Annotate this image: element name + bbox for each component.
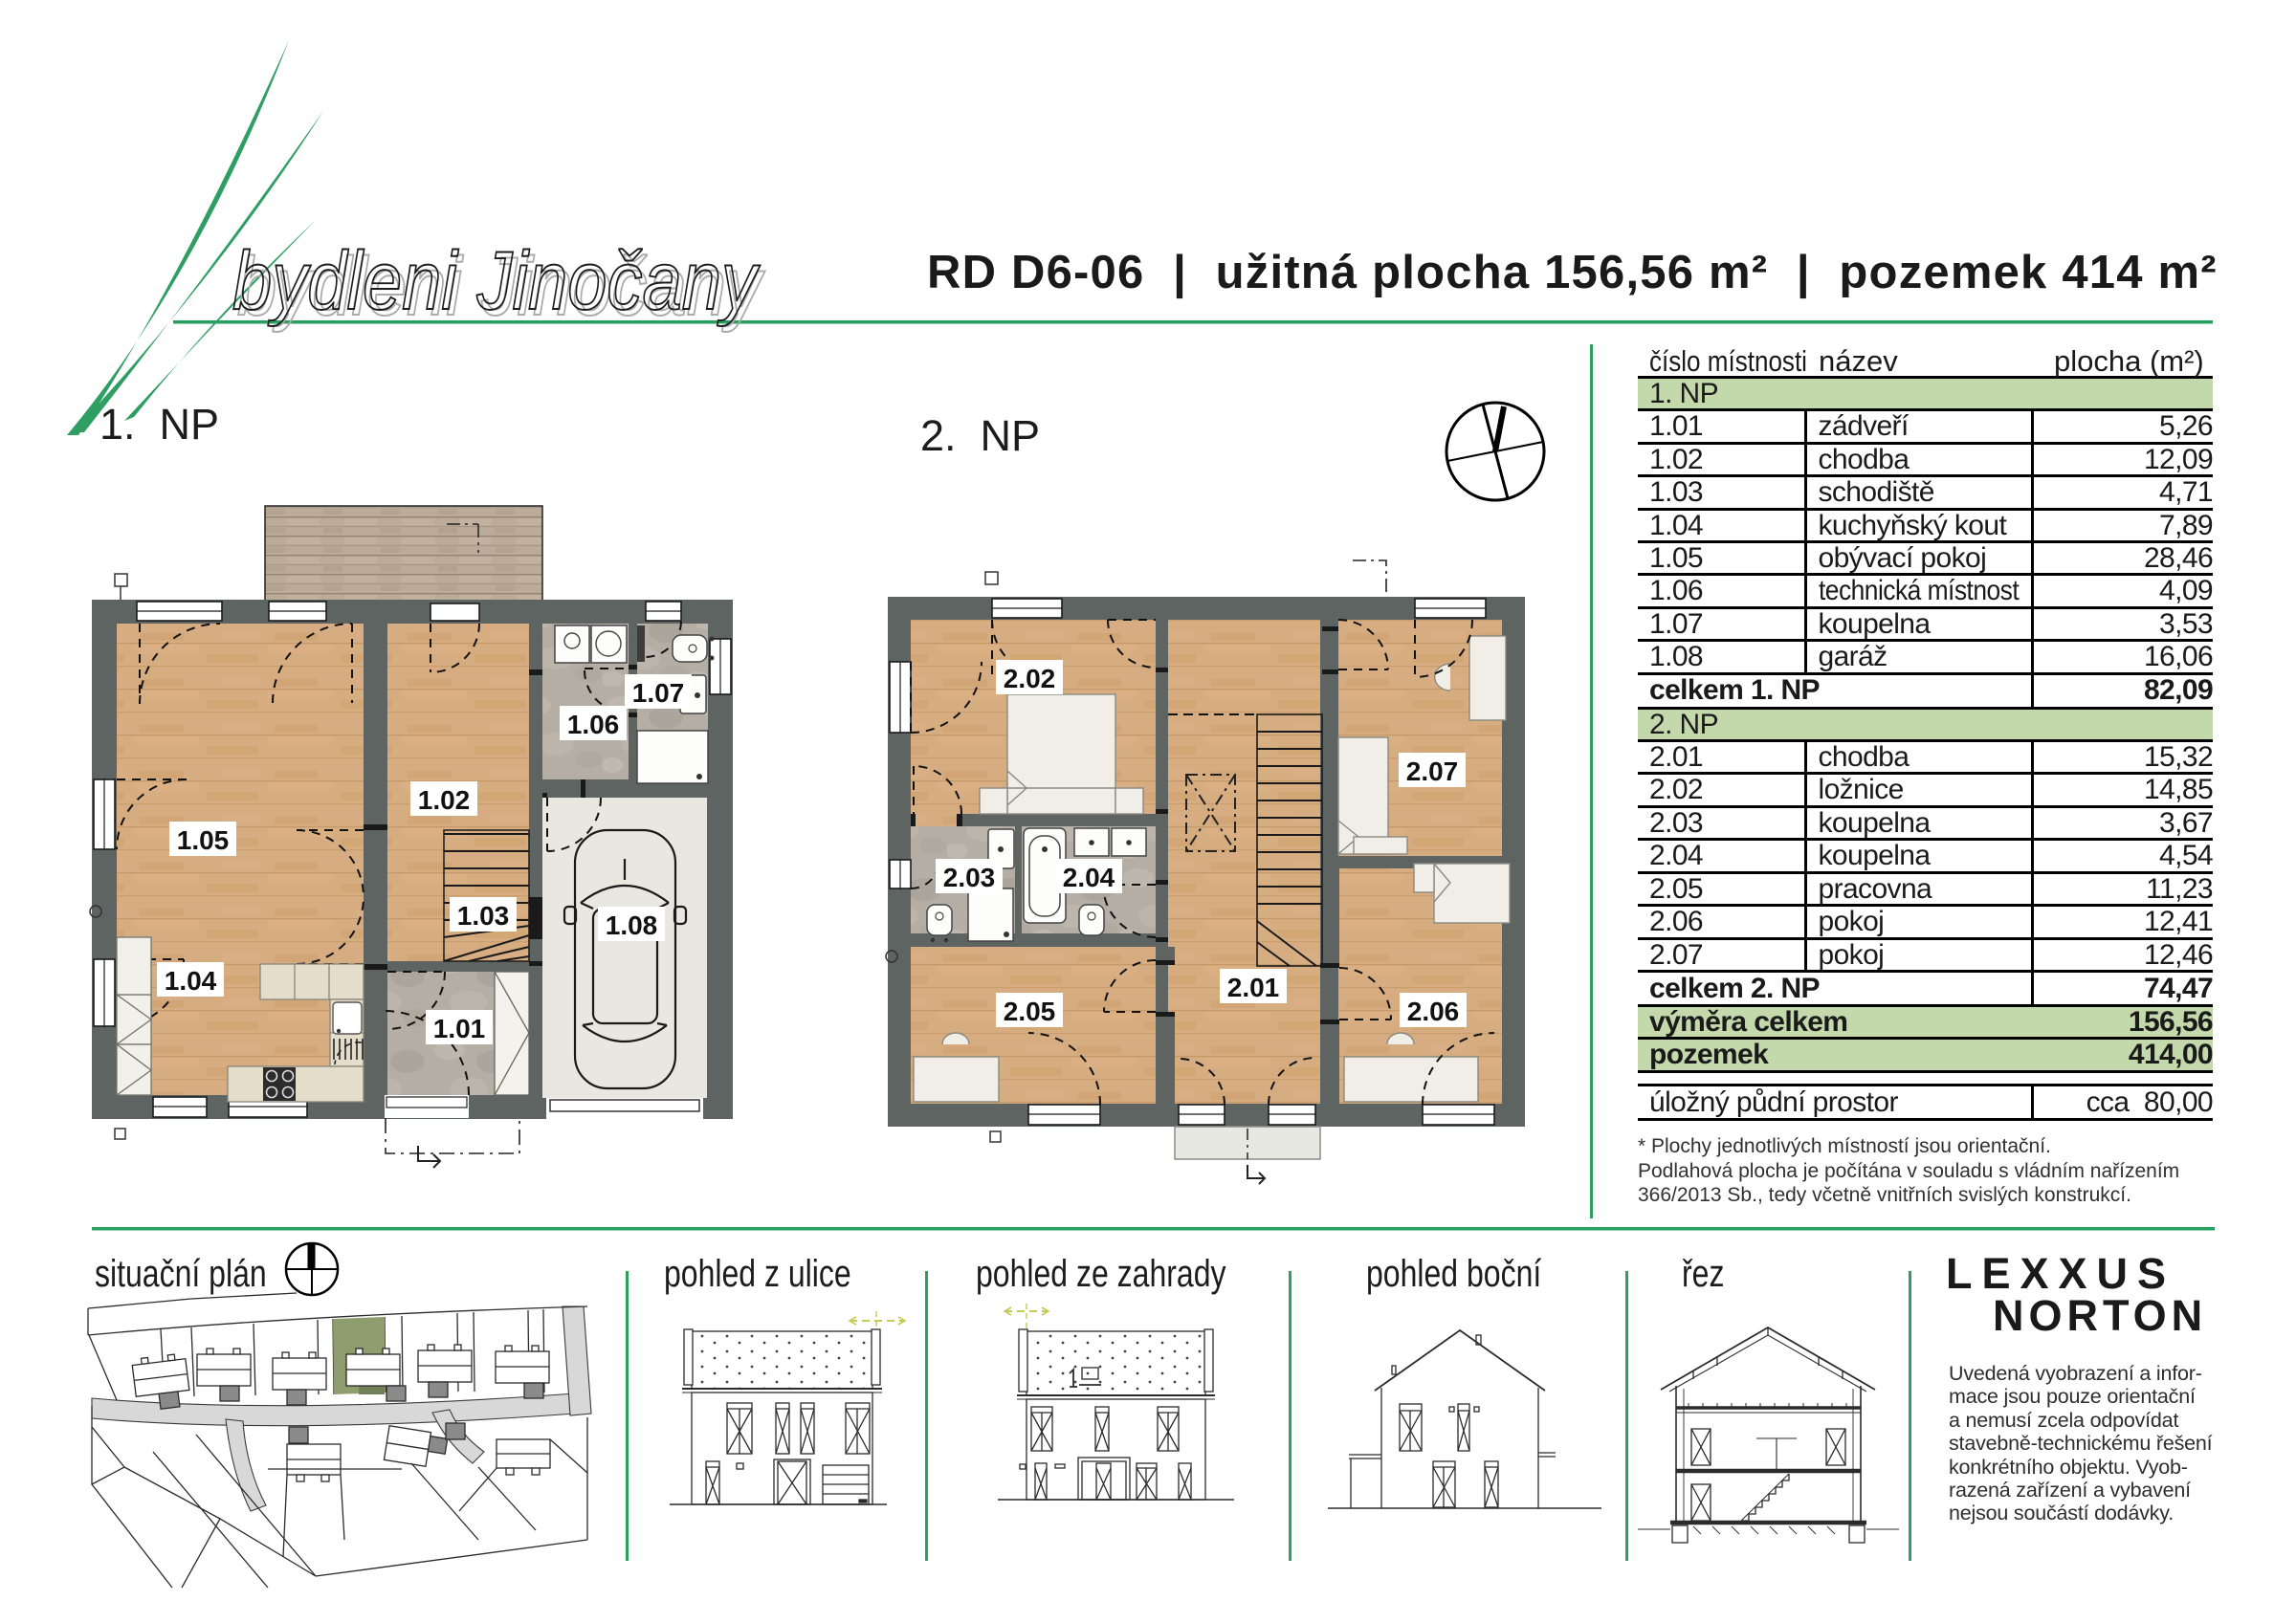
svg-text:1.04: 1.04 xyxy=(165,966,217,996)
svg-text:2.05: 2.05 xyxy=(1004,997,1056,1026)
svg-text:2.01: 2.01 xyxy=(1227,973,1280,1002)
svg-text:1.08: 1.08 xyxy=(606,910,658,940)
svg-text:1.06: 1.06 xyxy=(567,710,620,739)
svg-text:2.04: 2.04 xyxy=(1063,863,1115,892)
svg-text:1.07: 1.07 xyxy=(632,678,685,708)
svg-text:2.03: 2.03 xyxy=(943,863,996,892)
svg-text:bydleni Jinočany: bydleni Jinočany xyxy=(232,235,761,327)
svg-text:1.02: 1.02 xyxy=(418,785,471,815)
svg-text:1.01: 1.01 xyxy=(433,1014,486,1043)
svg-text:2.06: 2.06 xyxy=(1407,997,1460,1026)
svg-text:1.05: 1.05 xyxy=(177,825,230,855)
svg-text:2.02: 2.02 xyxy=(1004,664,1056,693)
svg-text:1.03: 1.03 xyxy=(457,901,510,931)
svg-text:2.07: 2.07 xyxy=(1406,757,1459,786)
